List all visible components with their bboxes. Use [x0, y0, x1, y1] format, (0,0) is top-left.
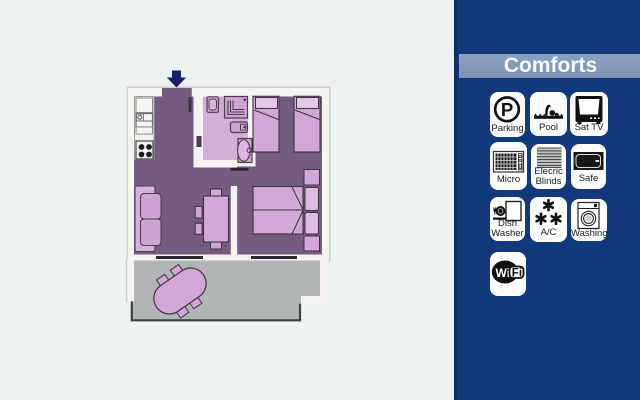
svg-text:Wi: Wi	[496, 266, 511, 280]
svg-text:Fi: Fi	[512, 267, 522, 279]
svg-text:P: P	[501, 99, 513, 120]
